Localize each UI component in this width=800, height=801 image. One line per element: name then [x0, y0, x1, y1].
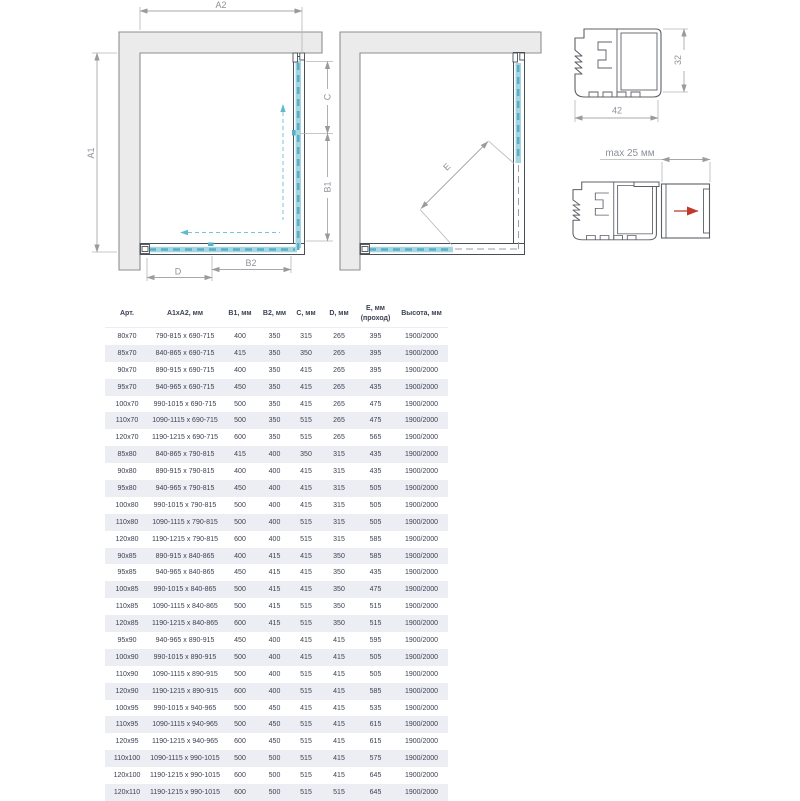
table-cell: 415	[322, 721, 356, 728]
table-cell: 100x70	[105, 401, 149, 408]
table-cell: 515	[290, 536, 322, 543]
table-cell: 415	[322, 772, 356, 779]
table-row: 120x701190-1215 x 690-715600350515265565…	[105, 429, 448, 446]
table-cell: 415	[290, 553, 322, 560]
table-cell: 475	[356, 401, 395, 408]
table-cell: 265	[322, 434, 356, 441]
table-cell: 505	[356, 654, 395, 661]
table-cell: 515	[290, 688, 322, 695]
table-cell: 100x95	[105, 705, 149, 712]
table-cell: 840-865 x 790-815	[149, 451, 221, 458]
table-row: 95x80940-965 x 790-815450400415315505190…	[105, 480, 448, 497]
table-cell: 400	[259, 519, 290, 526]
table-row: 120x801190-1215 x 790-815600400515315585…	[105, 531, 448, 548]
table-cell: 110x85	[105, 603, 149, 610]
table-cell: 500	[221, 502, 259, 509]
table-cell: 890-915 x 790-815	[149, 468, 221, 475]
table-cell: 415	[290, 502, 322, 509]
table-cell: 95x85	[105, 569, 149, 576]
table-cell: 940-965 x 840-865	[149, 569, 221, 576]
table-cell: 500	[221, 671, 259, 678]
table-cell: 415	[259, 620, 290, 627]
table-row: 120x1001190-1215 x 990-10156005005154156…	[105, 767, 448, 784]
table-cell: 1090-1115 x 790-815	[149, 519, 221, 526]
table-row: 120x851190-1215 x 840-865600415515350515…	[105, 615, 448, 632]
table-row: 110x851090-1115 x 840-865500415515350515…	[105, 598, 448, 615]
table-cell: 1190-1215 x 840-865	[149, 620, 221, 627]
table-cell: 500	[221, 401, 259, 408]
table-cell: 415	[322, 755, 356, 762]
table-cell: 1900/2000	[395, 553, 448, 560]
table-cell: 415	[290, 485, 322, 492]
table-cell: 940-965 x 690-715	[149, 384, 221, 391]
spec-table: Арт.А1хА2, ммВ1, ммВ2, ммС, ммD, ммЕ, мм…	[105, 300, 448, 801]
table-cell: 600	[221, 620, 259, 627]
table-cell: 595	[356, 637, 395, 644]
table-cell: 415	[259, 603, 290, 610]
table-cell: 315	[322, 536, 356, 543]
table-cell: 615	[356, 721, 395, 728]
profile-section: 32 42	[575, 29, 688, 122]
table-cell: 350	[259, 367, 290, 374]
table-cell: 515	[290, 417, 322, 424]
table-cell: 395	[356, 333, 395, 340]
dim-label-32: 32	[673, 55, 683, 65]
table-cell: 1900/2000	[395, 468, 448, 475]
table-cell: 1900/2000	[395, 434, 448, 441]
dim-label-a2: A2	[215, 0, 226, 10]
table-cell: 450	[259, 705, 290, 712]
table-cell: 350	[322, 603, 356, 610]
table-cell: 400	[221, 468, 259, 475]
table-cell: 1900/2000	[395, 502, 448, 509]
table-row: 100x80990-1015 x 790-8155004004153155051…	[105, 497, 448, 514]
table-cell: 110x90	[105, 671, 149, 678]
table-cell: 120x95	[105, 738, 149, 745]
column-header: В2, мм	[259, 309, 290, 318]
table-row: 110x951090-1115 x 940-965500450515415615…	[105, 716, 448, 733]
table-cell: 265	[322, 384, 356, 391]
table-cell: 415	[322, 688, 356, 695]
plan-view-open: E	[340, 32, 541, 270]
table-row: 90x85890-915 x 840-865400415415350585190…	[105, 548, 448, 565]
table-cell: 1900/2000	[395, 367, 448, 374]
table-cell: 415	[290, 654, 322, 661]
table-cell: 600	[221, 738, 259, 745]
table-cell: 415	[290, 586, 322, 593]
table-cell: 600	[221, 789, 259, 796]
table-cell: 1900/2000	[395, 586, 448, 593]
table-cell: 265	[322, 401, 356, 408]
table-cell: 515	[290, 603, 322, 610]
table-row: 85x70840-865 x 690-715415350350265395190…	[105, 345, 448, 362]
table-cell: 1190-1215 x 990-1015	[149, 772, 221, 779]
table-cell: 515	[290, 620, 322, 627]
table-cell: 265	[322, 417, 356, 424]
table-cell: 1900/2000	[395, 536, 448, 543]
table-cell: 645	[356, 789, 395, 796]
table-cell: 515	[290, 755, 322, 762]
table-cell: 1900/2000	[395, 789, 448, 796]
table-cell: 400	[259, 451, 290, 458]
table-cell: 415	[322, 738, 356, 745]
table-cell: 435	[356, 569, 395, 576]
table-cell: 400	[259, 536, 290, 543]
table-cell: 400	[221, 333, 259, 340]
table-cell: 350	[322, 569, 356, 576]
table-cell: 415	[322, 637, 356, 644]
table-cell: 515	[356, 620, 395, 627]
table-cell: 475	[356, 586, 395, 593]
table-cell: 1190-1215 x 990-1015	[149, 789, 221, 796]
table-cell: 400	[259, 637, 290, 644]
table-cell: 120x70	[105, 434, 149, 441]
table-cell: 450	[221, 485, 259, 492]
table-cell: 500	[221, 654, 259, 661]
table-cell: 315	[322, 519, 356, 526]
table-row: 110x901090-1115 x 890-915500400515415505…	[105, 666, 448, 683]
table-cell: 600	[221, 434, 259, 441]
door-knob	[208, 243, 214, 247]
walls	[119, 32, 322, 270]
table-cell: 505	[356, 671, 395, 678]
table-cell: 315	[322, 451, 356, 458]
table-cell: 500	[221, 755, 259, 762]
table-cell: 565	[356, 434, 395, 441]
table-cell: 585	[356, 688, 395, 695]
table-row: 100x95990-1015 x 940-9655004504154155351…	[105, 700, 448, 717]
table-cell: 350	[259, 417, 290, 424]
table-row: 95x70940-965 x 690-715450350415265435190…	[105, 379, 448, 396]
table-cell: 350	[290, 451, 322, 458]
table-cell: 990-1015 x 790-815	[149, 502, 221, 509]
table-cell: 110x95	[105, 721, 149, 728]
table-cell: 840-865 x 690-715	[149, 350, 221, 357]
table-cell: 1900/2000	[395, 620, 448, 627]
table-cell: 80x70	[105, 333, 149, 340]
profile-extension-section: max 25 мм	[573, 148, 710, 240]
table-cell: 615	[356, 738, 395, 745]
column-header: D, мм	[322, 309, 356, 318]
table-cell: 415	[259, 586, 290, 593]
table-cell: 415	[221, 350, 259, 357]
table-cell: 395	[356, 350, 395, 357]
table-cell: 515	[290, 721, 322, 728]
table-cell: 1900/2000	[395, 569, 448, 576]
table-cell: 990-1015 x 940-965	[149, 705, 221, 712]
table-cell: 1900/2000	[395, 772, 448, 779]
table-cell: 1190-1215 x 690-715	[149, 434, 221, 441]
table-cell: 350	[259, 401, 290, 408]
dim-label-42: 42	[612, 106, 622, 116]
table-cell: 415	[290, 367, 322, 374]
table-cell: 500	[221, 417, 259, 424]
table-body: 80x70790-815 x 690-715400350315265395190…	[105, 328, 448, 801]
table-cell: 400	[259, 468, 290, 475]
table-cell: 95x90	[105, 637, 149, 644]
table-cell: 85x70	[105, 350, 149, 357]
table-cell: 415	[221, 451, 259, 458]
table-cell: 265	[322, 367, 356, 374]
table-cell: 110x100	[105, 755, 149, 762]
table-row: 80x70790-815 x 690-715400350315265395190…	[105, 328, 448, 345]
table-cell: 120x100	[105, 772, 149, 779]
table-cell: 315	[322, 468, 356, 475]
table-cell: 110x80	[105, 519, 149, 526]
table-cell: 1900/2000	[395, 738, 448, 745]
table-cell: 500	[221, 603, 259, 610]
table-cell: 990-1015 x 890-915	[149, 654, 221, 661]
table-cell: 415	[259, 553, 290, 560]
table-cell: 350	[259, 434, 290, 441]
table-cell: 400	[221, 367, 259, 374]
table-cell: 100x85	[105, 586, 149, 593]
table-row: 95x85940-965 x 840-865450415415350435190…	[105, 564, 448, 581]
table-cell: 120x110	[105, 789, 149, 796]
table-cell: 415	[322, 705, 356, 712]
table-header-row: Арт.А1хА2, ммВ1, ммВ2, ммС, ммD, ммЕ, мм…	[105, 300, 448, 328]
table-cell: 315	[290, 333, 322, 340]
table-cell: 415	[290, 468, 322, 475]
table-cell: 890-915 x 840-865	[149, 553, 221, 560]
table-cell: 350	[322, 553, 356, 560]
table-cell: 400	[221, 553, 259, 560]
table-row: 120x951190-1215 x 940-965600450515415615…	[105, 733, 448, 750]
table-cell: 1900/2000	[395, 721, 448, 728]
table-cell: 415	[290, 569, 322, 576]
table-cell: 515	[290, 772, 322, 779]
table-cell: 315	[322, 485, 356, 492]
table-cell: 395	[356, 367, 395, 374]
table-row: 90x70890-915 x 690-715400350415265395190…	[105, 362, 448, 379]
table-cell: 450	[259, 721, 290, 728]
table-cell: 120x85	[105, 620, 149, 627]
dim-label-a1: A1	[86, 147, 96, 158]
table-cell: 1190-1215 x 890-915	[149, 688, 221, 695]
table-cell: 1900/2000	[395, 671, 448, 678]
column-header: С, мм	[290, 309, 322, 318]
technical-drawings: A2 A1 C B1 B2 D	[0, 0, 800, 298]
table-cell: 265	[322, 333, 356, 340]
door-knob	[292, 130, 296, 136]
table-cell: 940-965 x 790-815	[149, 485, 221, 492]
table-cell: 500	[221, 721, 259, 728]
table-cell: 600	[221, 772, 259, 779]
dim-label-b1: B1	[323, 181, 333, 192]
table-cell: 120x80	[105, 536, 149, 543]
table-cell: 400	[259, 502, 290, 509]
table-cell: 500	[221, 705, 259, 712]
table-cell: 350	[259, 384, 290, 391]
table-cell: 100x80	[105, 502, 149, 509]
dim-label-e: E	[441, 161, 452, 172]
table-cell: 90x70	[105, 367, 149, 374]
table-cell: 95x80	[105, 485, 149, 492]
table-cell: 400	[259, 671, 290, 678]
table-cell: 1090-1115 x 990-1015	[149, 755, 221, 762]
walls	[340, 32, 541, 270]
table-cell: 435	[356, 384, 395, 391]
table-cell: 435	[356, 451, 395, 458]
table-cell: 585	[356, 553, 395, 560]
table-cell: 500	[259, 789, 290, 796]
table-row: 85x80840-865 x 790-815415400350315435190…	[105, 446, 448, 463]
table-cell: 1190-1215 x 940-965	[149, 738, 221, 745]
table-cell: 1900/2000	[395, 350, 448, 357]
table-cell: 505	[356, 519, 395, 526]
table-cell: 415	[290, 637, 322, 644]
table-cell: 1900/2000	[395, 451, 448, 458]
table-cell: 890-915 x 690-715	[149, 367, 221, 374]
table-cell: 90x85	[105, 553, 149, 560]
table-cell: 1900/2000	[395, 401, 448, 408]
table-cell: 1900/2000	[395, 637, 448, 644]
table-cell: 500	[221, 519, 259, 526]
table-cell: 645	[356, 772, 395, 779]
table-cell: 515	[290, 789, 322, 796]
table-cell: 515	[290, 434, 322, 441]
table-cell: 415	[322, 654, 356, 661]
table-cell: 415	[290, 384, 322, 391]
table-cell: 600	[221, 536, 259, 543]
table-row: 120x901190-1215 x 890-915600400515415585…	[105, 683, 448, 700]
table-row: 120x1101190-1215 x 990-10156005005155156…	[105, 784, 448, 801]
table-row: 110x801090-1115 x 790-815500400515315505…	[105, 514, 448, 531]
table-cell: 1900/2000	[395, 485, 448, 492]
dim-label-c: C	[323, 93, 333, 100]
table-cell: 1190-1215 x 790-815	[149, 536, 221, 543]
table-cell: 450	[221, 384, 259, 391]
table-cell: 515	[290, 738, 322, 745]
table-row: 90x80890-915 x 790-815400400415315435190…	[105, 463, 448, 480]
table-cell: 315	[322, 502, 356, 509]
dim-label-max25: max 25 мм	[605, 148, 654, 159]
column-header: А1хА2, мм	[149, 309, 221, 318]
column-header: Арт.	[105, 309, 149, 318]
table-row: 95x90940-965 x 890-915450400415415595190…	[105, 632, 448, 649]
table-cell: 400	[259, 485, 290, 492]
table-row: 100x85990-1015 x 840-8655004154153504751…	[105, 581, 448, 598]
table-row: 100x70990-1015 x 690-7155003504152654751…	[105, 396, 448, 413]
column-header: Высота, мм	[395, 309, 448, 318]
table-cell: 350	[290, 350, 322, 357]
table-cell: 400	[259, 688, 290, 695]
table-cell: 1900/2000	[395, 417, 448, 424]
table-cell: 415	[290, 401, 322, 408]
table-cell: 505	[356, 502, 395, 509]
column-header: Е, мм (проход)	[356, 304, 395, 323]
table-cell: 350	[322, 586, 356, 593]
table-cell: 1900/2000	[395, 688, 448, 695]
table-cell: 505	[356, 485, 395, 492]
table-cell: 515	[290, 671, 322, 678]
column-header: В1, мм	[221, 309, 259, 318]
table-cell: 110x70	[105, 417, 149, 424]
table-cell: 1090-1115 x 890-915	[149, 671, 221, 678]
table-cell: 940-965 x 890-915	[149, 637, 221, 644]
table-cell: 1900/2000	[395, 705, 448, 712]
table-cell: 350	[259, 333, 290, 340]
table-cell: 600	[221, 688, 259, 695]
table-cell: 535	[356, 705, 395, 712]
table-cell: 1900/2000	[395, 654, 448, 661]
table-cell: 85x80	[105, 451, 149, 458]
table-cell: 1090-1115 x 840-865	[149, 603, 221, 610]
table-cell: 1900/2000	[395, 519, 448, 526]
table-cell: 100x90	[105, 654, 149, 661]
table-cell: 575	[356, 755, 395, 762]
table-cell: 990-1015 x 840-865	[149, 586, 221, 593]
table-row: 100x90990-1015 x 890-9155004004154155051…	[105, 649, 448, 666]
dim-label-d: D	[175, 267, 182, 277]
table-cell: 450	[221, 637, 259, 644]
table-row: 110x701090-1115 x 690-715500350515265475…	[105, 412, 448, 429]
table-cell: 265	[322, 350, 356, 357]
table-cell: 500	[221, 586, 259, 593]
table-cell: 1900/2000	[395, 333, 448, 340]
table-cell: 585	[356, 536, 395, 543]
table-cell: 450	[259, 738, 290, 745]
table-cell: 500	[259, 772, 290, 779]
table-cell: 790-815 x 690-715	[149, 333, 221, 340]
table-cell: 1090-1115 x 940-965	[149, 721, 221, 728]
table-cell: 435	[356, 468, 395, 475]
table-cell: 515	[322, 789, 356, 796]
table-cell: 90x80	[105, 468, 149, 475]
table-cell: 95x70	[105, 384, 149, 391]
table-cell: 515	[356, 603, 395, 610]
table-cell: 475	[356, 417, 395, 424]
table-cell: 1900/2000	[395, 603, 448, 610]
table-cell: 1090-1115 x 690-715	[149, 417, 221, 424]
slide-arrow-left	[180, 230, 188, 235]
table-row: 110x1001090-1115 x 990-10155005005154155…	[105, 750, 448, 767]
table-cell: 350	[322, 620, 356, 627]
table-cell: 400	[259, 654, 290, 661]
plan-view-closed: A2 A1 C B1 B2 D	[86, 0, 334, 281]
table-cell: 990-1015 x 690-715	[149, 401, 221, 408]
table-cell: 1900/2000	[395, 384, 448, 391]
dim-label-b2: B2	[245, 258, 256, 268]
slide-arrow-up	[280, 104, 285, 112]
table-cell: 515	[290, 519, 322, 526]
table-cell: 415	[290, 705, 322, 712]
table-cell: 500	[259, 755, 290, 762]
table-cell: 450	[221, 569, 259, 576]
table-cell: 120x90	[105, 688, 149, 695]
table-cell: 415	[322, 671, 356, 678]
table-cell: 350	[259, 350, 290, 357]
table-cell: 415	[259, 569, 290, 576]
table-cell: 1900/2000	[395, 755, 448, 762]
